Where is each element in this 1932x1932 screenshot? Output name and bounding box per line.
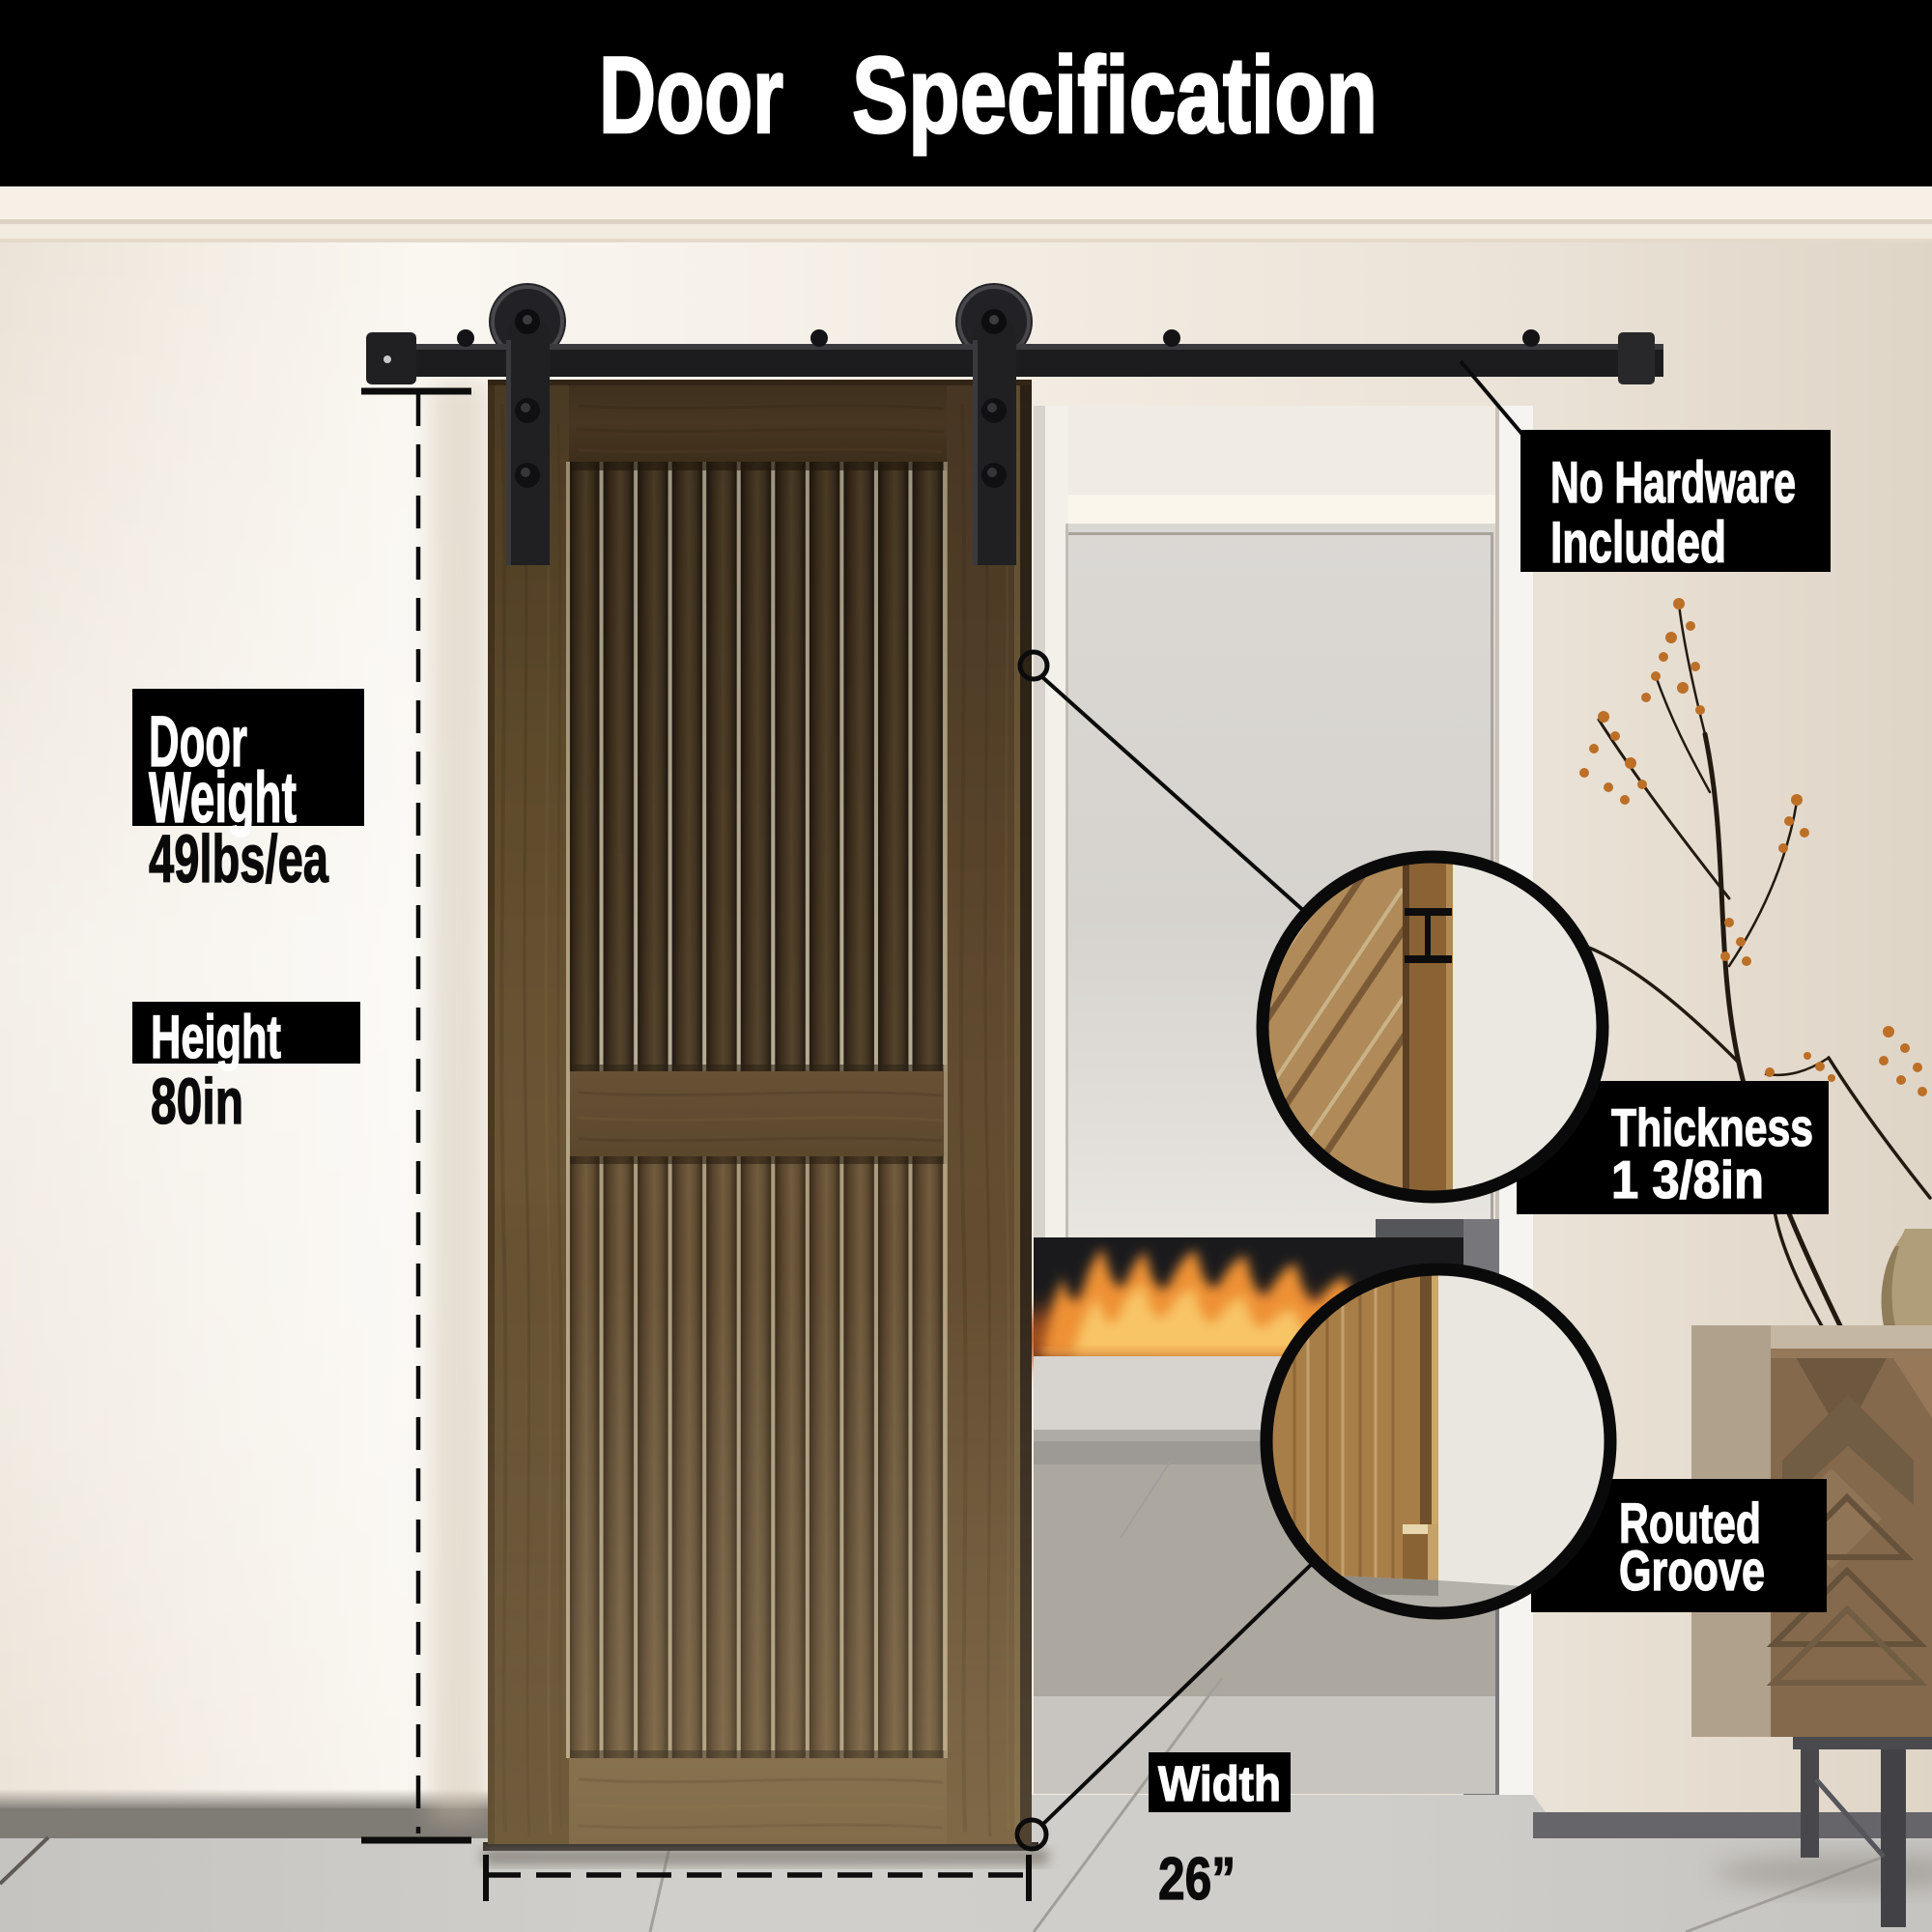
- svg-text:Thickness: Thickness: [1611, 1097, 1813, 1157]
- svg-text:49lbs/ea: 49lbs/ea: [149, 821, 329, 896]
- svg-text:Width: Width: [1158, 1756, 1281, 1811]
- svg-text:Door: Door: [599, 35, 783, 156]
- svg-text:Groove: Groove: [1619, 1540, 1765, 1603]
- svg-text:1 3/8in: 1 3/8in: [1611, 1150, 1764, 1209]
- svg-text:Included: Included: [1550, 510, 1726, 575]
- svg-text:No Hardware: No Hardware: [1550, 450, 1796, 515]
- svg-text:26”: 26”: [1158, 1846, 1236, 1913]
- svg-text:80in: 80in: [151, 1065, 243, 1138]
- svg-text:Height: Height: [151, 1004, 281, 1071]
- svg-text:Specification: Specification: [852, 35, 1378, 156]
